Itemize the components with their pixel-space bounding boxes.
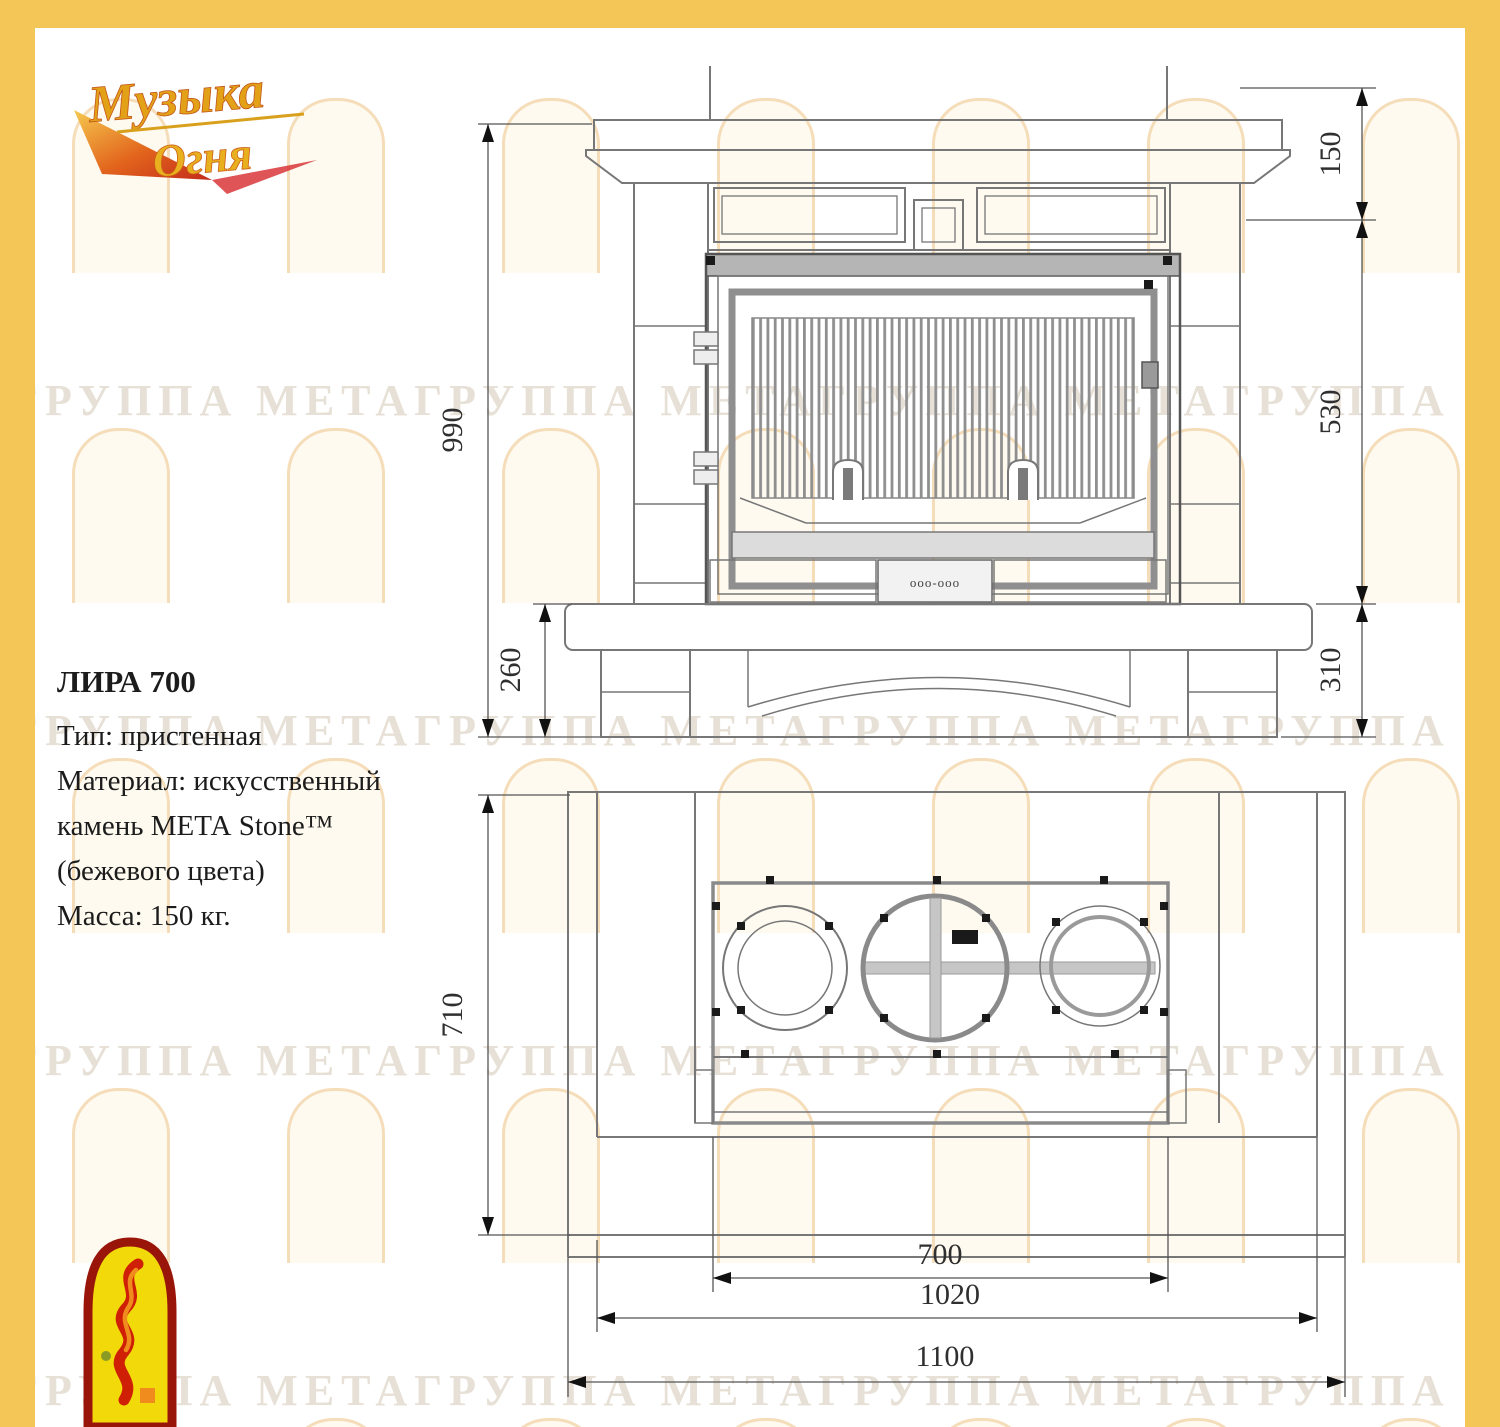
emblem-accent-dot <box>101 1351 111 1361</box>
dim-1100: 1100 <box>916 1340 975 1373</box>
dim-990: 990 <box>436 408 469 453</box>
dimensions: 150 530 310 990 260 710 700 1020 1100 <box>436 88 1376 1397</box>
base-arch <box>748 678 1130 708</box>
hearth-slab <box>565 604 1312 650</box>
dim-530: 530 <box>1314 390 1347 435</box>
base-leg-left <box>601 650 690 737</box>
plan-outer-contour <box>568 792 1345 1235</box>
dim-700: 700 <box>918 1238 963 1271</box>
dim-1020: 1020 <box>920 1278 980 1311</box>
damper-bar-vertical <box>930 898 941 1038</box>
dim-710: 710 <box>436 993 469 1038</box>
meta-emblem <box>78 1236 182 1427</box>
firebox-floor <box>732 498 1154 558</box>
base <box>601 650 1277 737</box>
mantel-molding <box>586 150 1290 183</box>
dim-310: 310 <box>1314 648 1347 693</box>
emblem-accent <box>140 1388 155 1403</box>
firebox-door <box>694 254 1180 604</box>
dim-260: 260 <box>494 648 527 693</box>
frame-top <box>0 0 1500 28</box>
frieze <box>708 188 1170 250</box>
mantel-shelf <box>594 120 1282 150</box>
door-grille <box>752 318 1134 498</box>
frame-left <box>0 0 35 1427</box>
fireplace-drawing: ооо-ооо <box>0 0 1500 1427</box>
base-leg-right <box>1188 650 1277 737</box>
top-view <box>568 792 1345 1257</box>
front-view: ооо-ооо <box>565 66 1312 737</box>
vent-label: ооо-ооо <box>910 575 960 590</box>
dim-150: 150 <box>1314 132 1347 177</box>
spec-sheet-page: ГРУППА МЕТАГРУППА МЕТАГРУППА МЕТАГРУППА … <box>0 0 1500 1427</box>
frame-right <box>1465 0 1500 1427</box>
door-handle <box>1142 362 1158 388</box>
